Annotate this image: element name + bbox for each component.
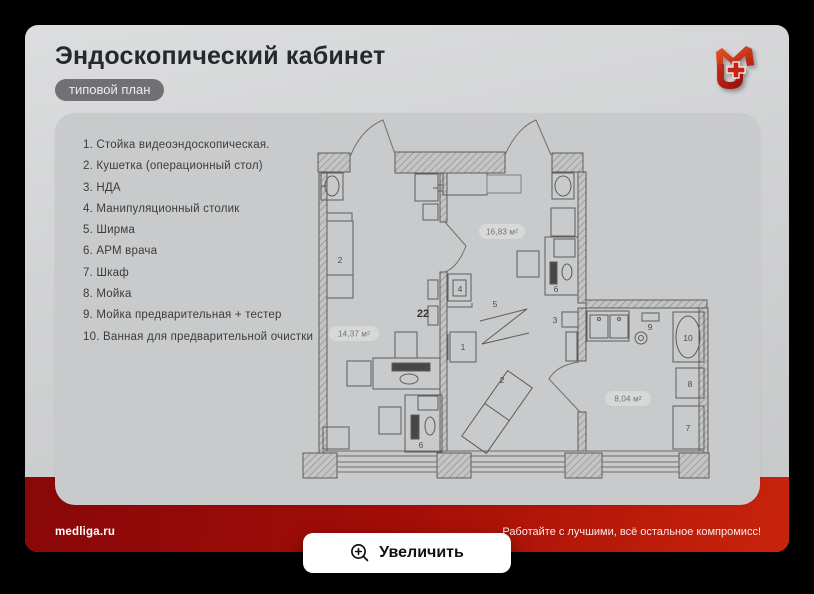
plan-windows: [337, 462, 679, 472]
area-label-middle: 16,83 м²: [486, 228, 518, 237]
mark-wardrobe: 7: [686, 423, 691, 433]
legend-item: 2. Кушетка (операционный стол): [83, 156, 313, 177]
mark-presink: 9: [648, 322, 653, 332]
plan-furniture: [321, 173, 704, 453]
mark-stand: 1: [461, 342, 466, 352]
screenshot-stage: Эндоскопический кабинет типовой план: [0, 0, 814, 594]
plan-item-marks: 2 6 6 22 4 5 1 2 6 3 9 10 8 7: [338, 255, 693, 450]
plan-bottom-wall: [323, 451, 704, 456]
area-label-right: 8,04 м²: [614, 395, 641, 404]
legend-item: 3. НДА: [83, 178, 313, 199]
legend-item: 7. Шкаф: [83, 263, 313, 284]
legend-item: 6. АРМ врача: [83, 241, 313, 262]
area-label-left: 14,37 м²: [338, 330, 370, 339]
mark-table: 4: [458, 284, 463, 294]
site-label: medliga.ru: [55, 526, 115, 538]
mark-screen: 5: [493, 299, 498, 309]
mark-arm-2: 6: [419, 440, 424, 450]
plan-walls: [318, 152, 708, 455]
floor-plan: 14,37 м² 16,83 м² 8,04 м² 2 6 6 22 4 5 1…: [295, 115, 720, 495]
presentation-slide: Эндоскопический кабинет типовой план: [25, 25, 789, 552]
page-title: Эндоскопический кабинет: [55, 42, 385, 71]
mark-nda: 3: [553, 315, 558, 325]
equipment-legend: 1. Стойка видеоэндоскопическая. 2. Кушет…: [83, 135, 313, 348]
legend-item: 8. Мойка: [83, 284, 313, 305]
mark-op-table: 2: [500, 375, 505, 385]
legend-item: 9. Мойка предварительная + тестер: [83, 305, 313, 326]
mark-sink: 8: [688, 379, 693, 389]
mark-arm-3: 6: [554, 284, 559, 294]
zoom-button-label: Увеличить: [379, 544, 464, 562]
mark-couch: 2: [338, 255, 343, 265]
zoom-button[interactable]: Увеличить: [303, 533, 511, 573]
legend-item: 1. Стойка видеоэндоскопическая.: [83, 135, 313, 156]
plan-type-badge: типовой план: [55, 79, 164, 101]
mark-bath: 10: [683, 333, 693, 343]
plan-pilasters: [303, 453, 709, 478]
legend-item: 5. Ширма: [83, 220, 313, 241]
legend-item: 4. Манипуляционный столик: [83, 199, 313, 220]
medliga-logo-icon: [703, 35, 765, 97]
mark-arm-1: 6: [426, 363, 431, 373]
magnifier-plus-icon: [350, 543, 370, 563]
mark-22: 22: [417, 308, 429, 320]
content-card: 1. Стойка видеоэндоскопическая. 2. Кушет…: [55, 113, 760, 505]
footer-slogan: Работайте с лучшими, всё остальное компр…: [502, 526, 761, 538]
legend-item: 10. Ванная для предварительной очистки: [83, 327, 313, 348]
